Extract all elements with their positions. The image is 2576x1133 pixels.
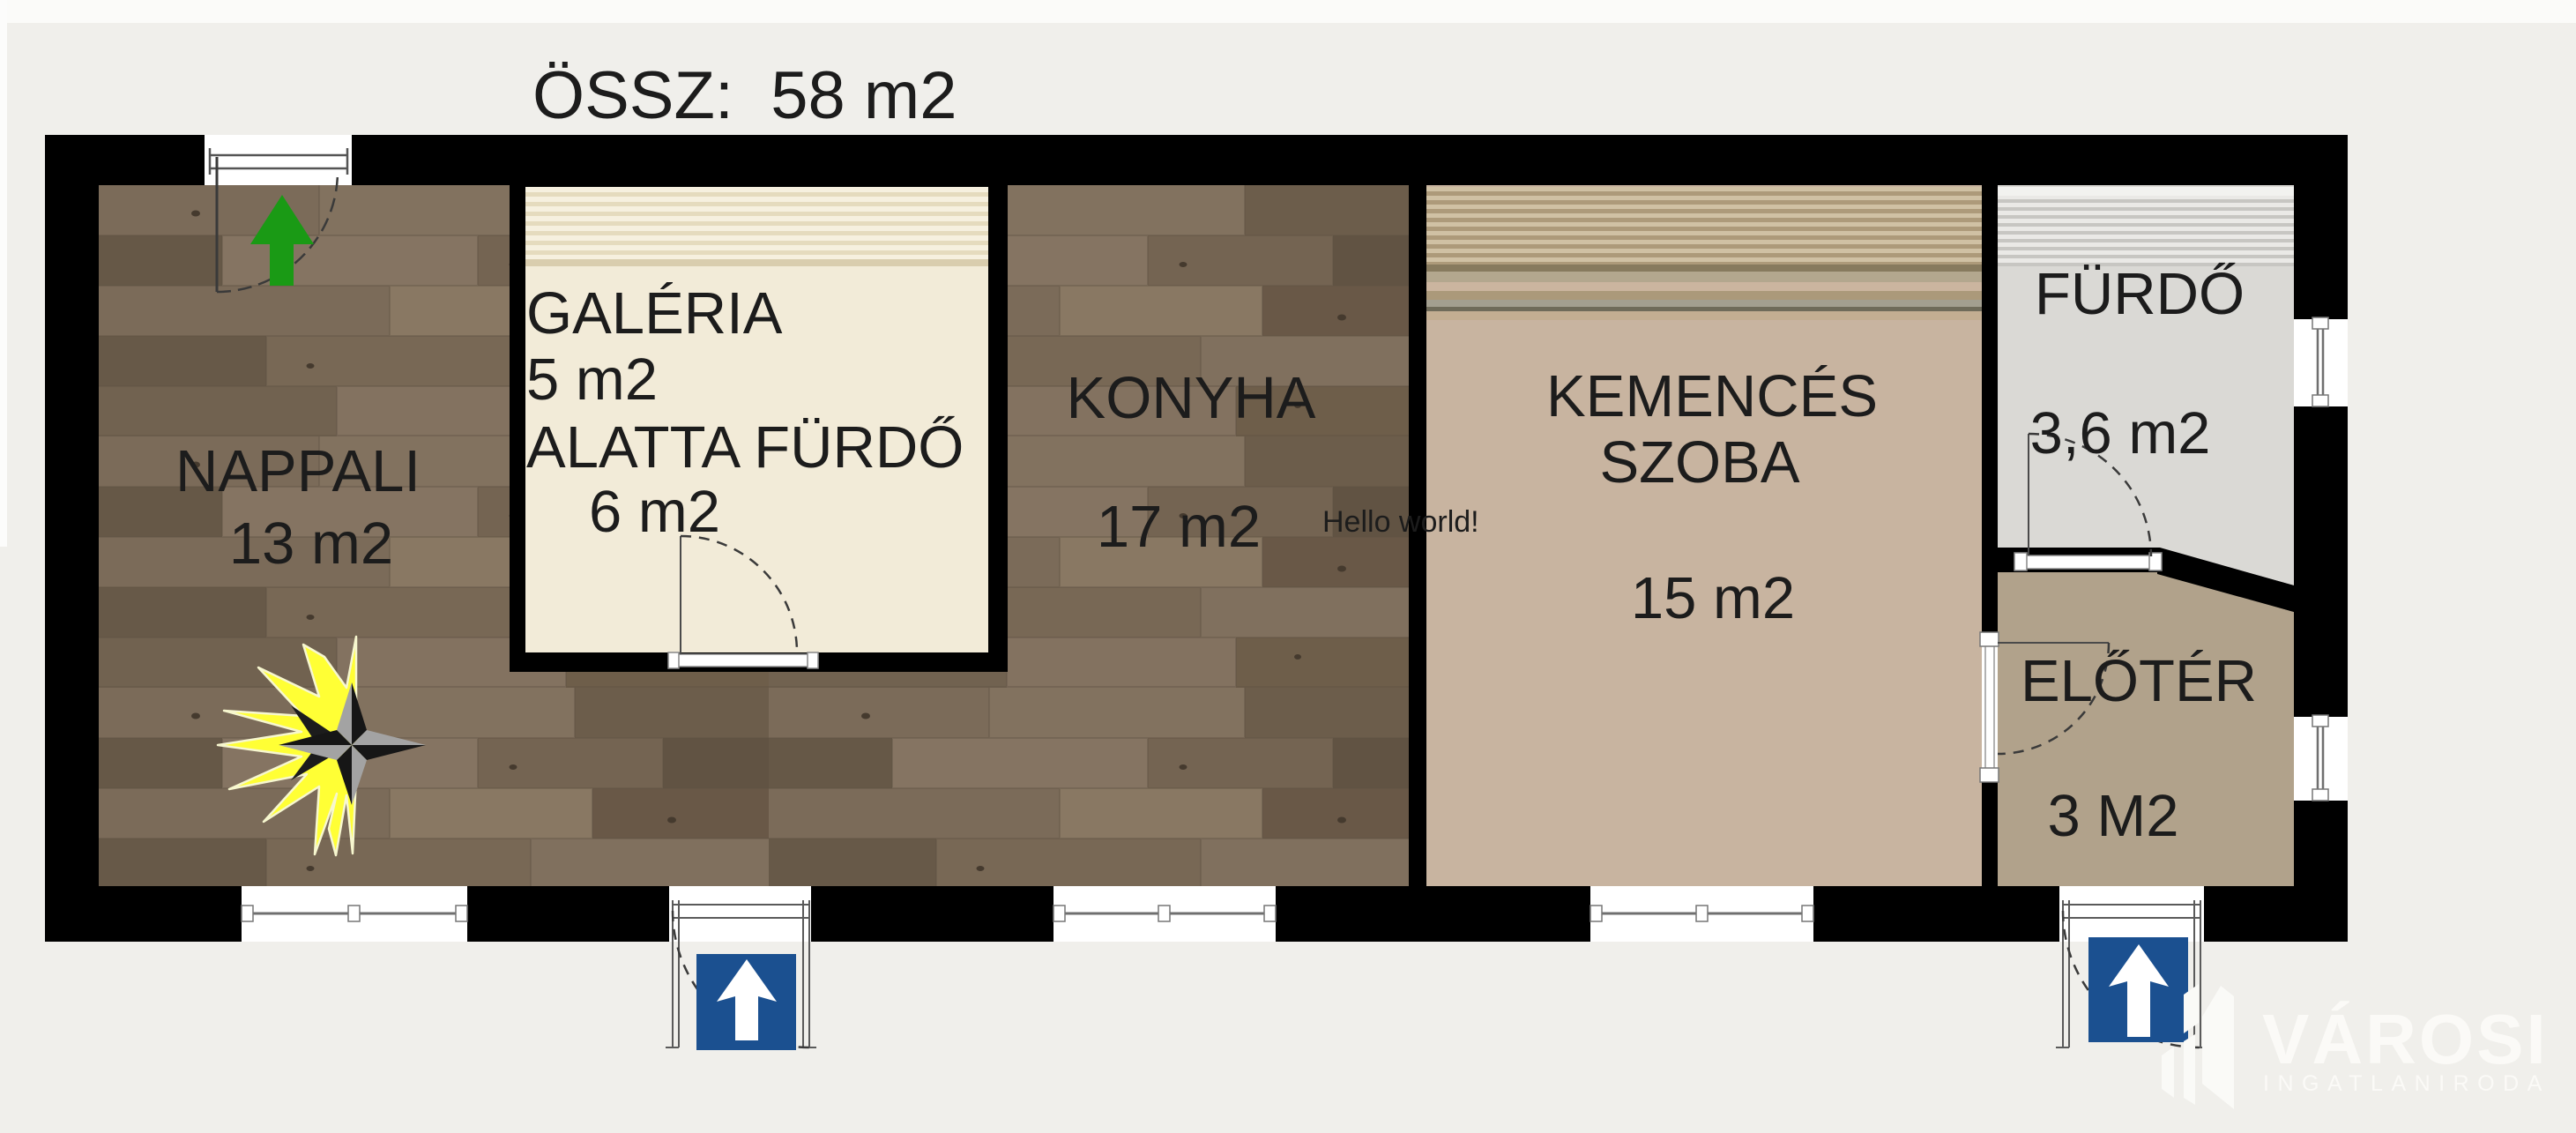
svg-text:KEMENCÉS: KEMENCÉS xyxy=(1546,363,1878,429)
svg-text:Hello world!: Hello world! xyxy=(1322,505,1479,539)
svg-text:15 m2: 15 m2 xyxy=(1631,565,1795,631)
svg-text:17 m2: 17 m2 xyxy=(1097,494,1261,560)
svg-text:GALÉRIA: GALÉRIA xyxy=(526,280,783,347)
svg-text:INGATLANIRODA: INGATLANIRODA xyxy=(2263,1071,2550,1096)
svg-text:KONYHA: KONYHA xyxy=(1067,365,1316,431)
svg-text:6 m2: 6 m2 xyxy=(589,479,720,545)
svg-text:ÖSSZ: 58 m2: ÖSSZ: 58 m2 xyxy=(532,58,957,133)
svg-text:NAPPALI: NAPPALI xyxy=(175,438,421,504)
svg-text:FÜRDŐ: FÜRDŐ xyxy=(2035,261,2245,327)
svg-text:3 M2: 3 M2 xyxy=(2048,783,2179,849)
svg-text:VÁROSI: VÁROSI xyxy=(2262,1000,2549,1078)
svg-text:SZOBA: SZOBA xyxy=(1599,429,1799,496)
svg-text:ELŐTÉR: ELŐTÉR xyxy=(2021,648,2257,714)
svg-text:3,6 m2: 3,6 m2 xyxy=(2030,400,2211,466)
svg-text:ALATTA FÜRDŐ: ALATTA FÜRDŐ xyxy=(526,414,964,481)
svg-text:5 m2: 5 m2 xyxy=(526,347,658,413)
svg-text:13 m2: 13 m2 xyxy=(229,511,393,577)
